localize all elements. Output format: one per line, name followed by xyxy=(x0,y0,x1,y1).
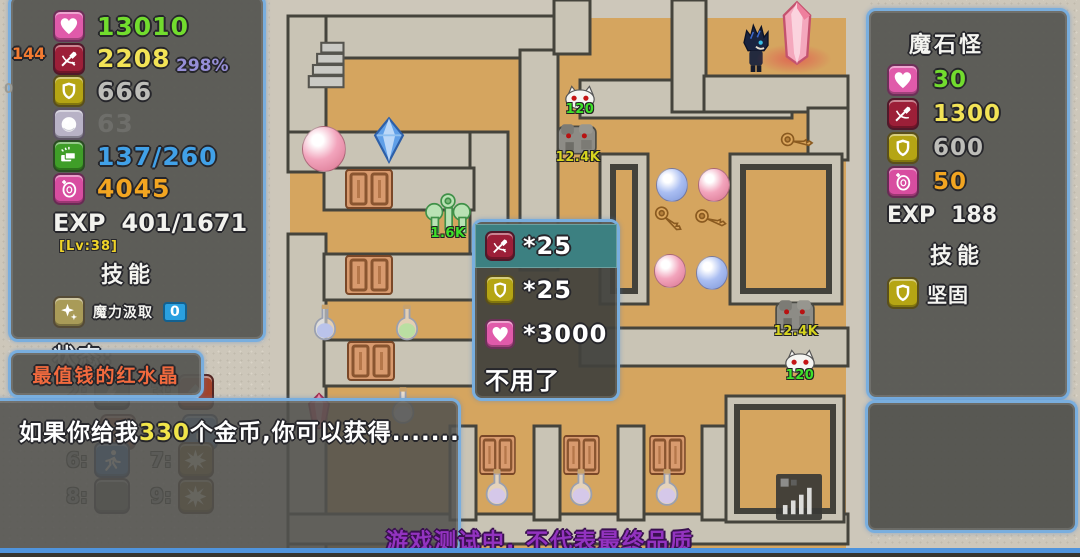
hp-value: 13010 xyxy=(97,12,189,41)
orb-icon xyxy=(53,108,85,140)
menu-option-attack[interactable]: *25 xyxy=(475,224,617,268)
player-stats-panel: 13010 2208 666 63 137/260 4045 xyxy=(8,0,266,342)
menu-option-decline[interactable]: 不用了 xyxy=(475,356,617,400)
blue-gem-item xyxy=(372,116,406,164)
purple-potion xyxy=(654,468,680,508)
purple-potion xyxy=(484,468,510,508)
heart-icon xyxy=(53,10,85,42)
npc-name: 最值钱的红水晶 xyxy=(32,361,179,388)
blue-orb-item xyxy=(656,168,688,202)
gold-pickup-stat-row: 137/260 xyxy=(53,140,263,173)
purple-potion xyxy=(568,468,594,508)
coin-icon xyxy=(887,166,919,198)
sword-icon xyxy=(53,43,85,75)
coin-icon xyxy=(53,173,85,205)
hp-stat-row: 13010 xyxy=(53,10,263,43)
monster-info-panel: 魔石怪 30 1300 600 50 EXP 188 技能 xyxy=(866,8,1070,400)
monster-hp-label: 120 xyxy=(558,102,602,117)
menu-option-label: *25 xyxy=(523,276,572,304)
monster-skills-title: 技能 xyxy=(887,238,1027,270)
monster-attack-value: 1300 xyxy=(933,101,1001,127)
stairs xyxy=(306,40,356,90)
choice-menu: *25 *25 *3000 不用了 xyxy=(472,219,620,401)
gold-amount: 330 xyxy=(139,420,190,446)
exp-line: EXP 401/1671 xyxy=(53,209,263,237)
monster-defense-value: 600 xyxy=(933,135,984,161)
sword-icon xyxy=(485,231,515,261)
defense-value: 666 xyxy=(97,77,152,106)
attack-stat-row: 2208 xyxy=(53,43,263,76)
pink-orb-item xyxy=(302,126,346,172)
orb-stat-row: 63 xyxy=(53,108,263,141)
monster-exp-label: EXP xyxy=(887,203,935,228)
monster-hp-label: 12.4K xyxy=(768,324,824,339)
skill-name: 魔力汲取 xyxy=(93,302,153,322)
gold-key-item xyxy=(688,201,732,236)
attack-value: 2208 xyxy=(97,44,171,73)
coin-value: 4045 xyxy=(97,174,171,203)
monster-exp-line: EXP 188 xyxy=(887,203,1067,228)
attack-buff-note: 144 xyxy=(12,44,45,63)
money-icon xyxy=(53,140,85,172)
monster-name: 魔石怪 xyxy=(909,27,1067,63)
defense-buff-note: 0 xyxy=(4,82,13,97)
exp-value: 401/1671 xyxy=(122,209,248,237)
blue-orb-item xyxy=(696,256,728,290)
monster-coin-value: 50 xyxy=(933,169,967,195)
monster-exp-value: 188 xyxy=(951,203,997,228)
npc-nameplate: 最值钱的红水晶 xyxy=(8,350,204,398)
pink-orb-item xyxy=(654,254,686,288)
defense-stat-row: 666 xyxy=(53,75,263,108)
monster-coin-row: 50 xyxy=(887,165,1067,199)
level-badge: [Lv:38] xyxy=(59,239,263,254)
gold-pickup-value: 137/260 xyxy=(97,142,218,171)
skills-title: 技能 xyxy=(53,257,203,289)
monster-defense-row: 600 xyxy=(887,131,1067,165)
menu-option-hp[interactable]: *3000 xyxy=(475,312,617,356)
blue-potion xyxy=(312,304,338,342)
shield-icon xyxy=(485,275,515,305)
screen-bottom-edge xyxy=(0,553,1080,557)
monster-hp-label: 1.6K xyxy=(426,226,470,241)
shield-icon xyxy=(53,75,85,107)
pink-orb-item xyxy=(698,168,730,202)
monster-hp-value: 30 xyxy=(933,67,967,93)
menu-option-defense[interactable]: *25 xyxy=(475,268,617,312)
monster-skill-row: 坚固 xyxy=(887,276,1067,310)
monster-attack-row: 1300 xyxy=(887,97,1067,131)
dialog-text: 如果你给我330个金币,你可以获得....... xyxy=(19,413,460,447)
menu-option-label: *25 xyxy=(523,232,572,260)
heart-icon xyxy=(485,319,515,349)
monster-hp-label: 12.4K xyxy=(550,150,606,165)
monster-hp-label: 120 xyxy=(778,368,822,383)
coin-stat-row: 4045 xyxy=(53,173,263,206)
red-crystal-npc xyxy=(778,0,816,66)
green-potion xyxy=(394,304,420,342)
shield-icon xyxy=(887,277,919,309)
heart-icon xyxy=(887,64,919,96)
orb-value: 63 xyxy=(97,109,134,138)
menu-option-label: *3000 xyxy=(523,320,607,348)
game-screen: 120 12.4K 1.6K 12.4K 1 xyxy=(0,0,1080,557)
secondary-info-panel xyxy=(865,400,1078,533)
sparkle-icon xyxy=(53,296,85,328)
monster-skill-name: 坚固 xyxy=(927,279,969,308)
sword-icon xyxy=(887,98,919,130)
skill-count-badge: 0 xyxy=(163,302,187,322)
skill-row: 魔力汲取 0 xyxy=(53,295,263,329)
menu-option-label: 不用了 xyxy=(485,361,560,396)
exp-label: EXP xyxy=(53,209,106,237)
crit-percent-note: 298% xyxy=(176,56,229,76)
shield-icon xyxy=(887,132,919,164)
monster-hp-row: 30 xyxy=(887,63,1067,97)
signal-bars-icon[interactable] xyxy=(776,474,822,520)
